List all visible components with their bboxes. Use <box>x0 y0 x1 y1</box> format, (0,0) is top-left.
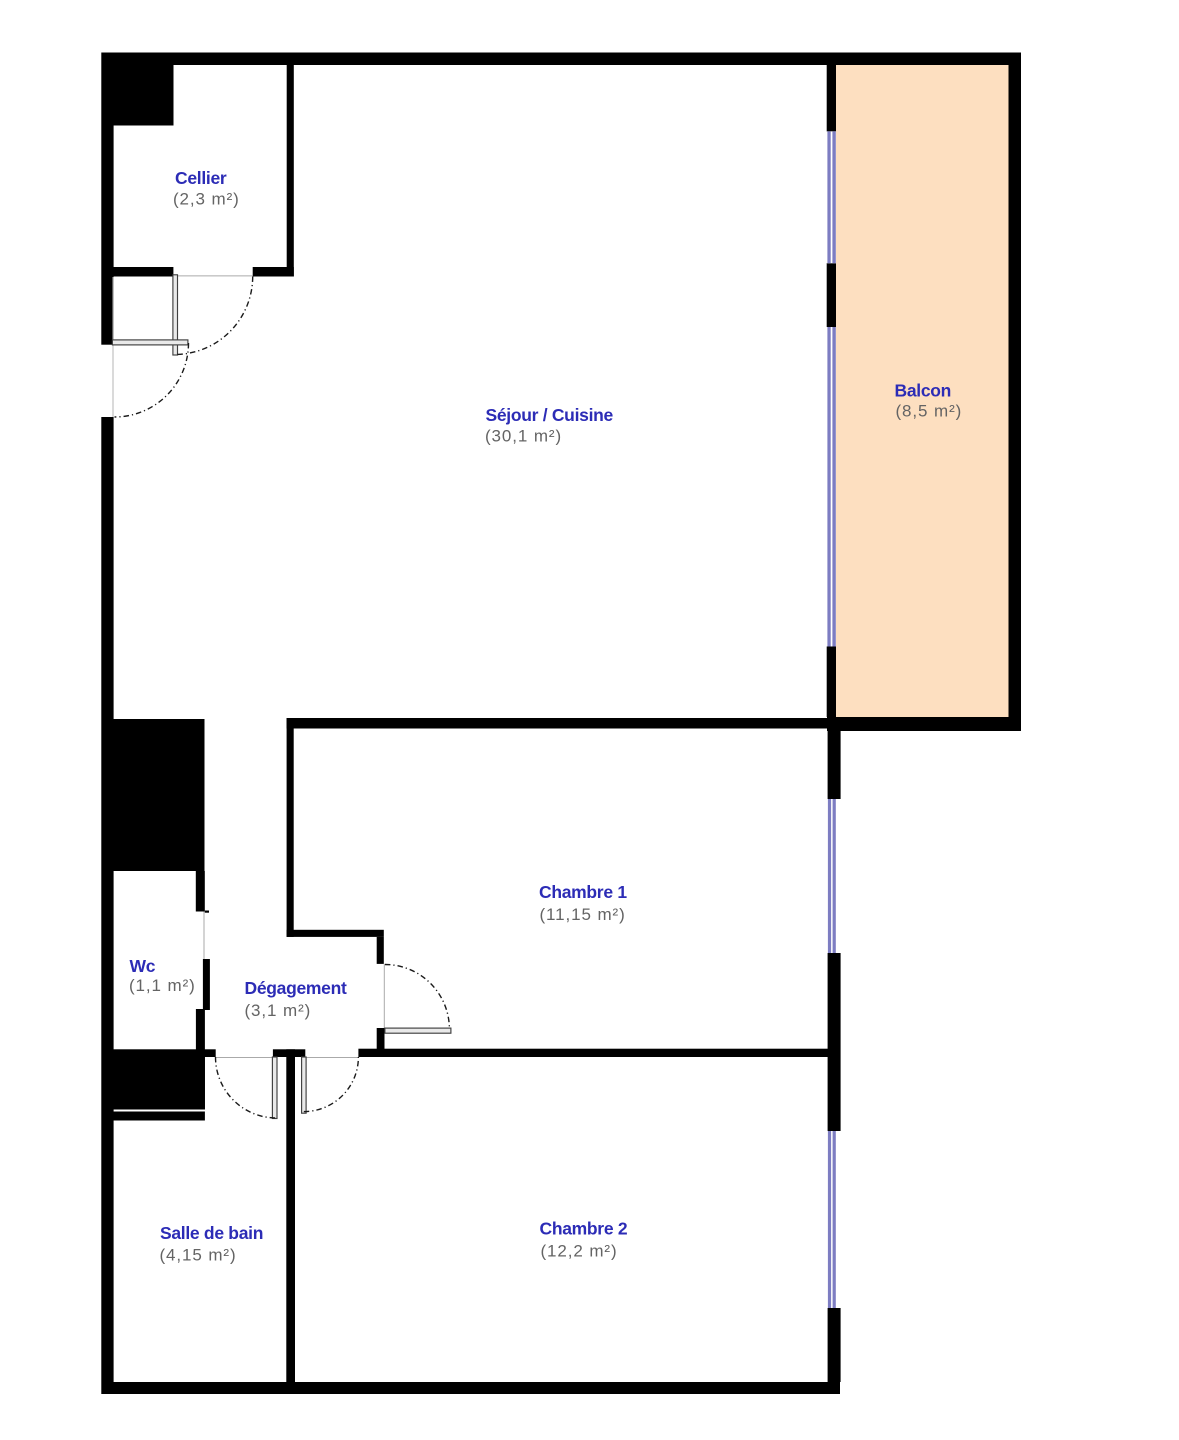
svg-text:(11,15 m²): (11,15 m²) <box>540 905 626 924</box>
svg-text:Chambre 2: Chambre 2 <box>540 1219 628 1239</box>
svg-text:(3,1 m²): (3,1 m²) <box>245 1001 312 1020</box>
svg-text:Cellier: Cellier <box>175 168 227 188</box>
svg-text:(2,3 m²): (2,3 m²) <box>173 190 240 209</box>
svg-text:Séjour / Cuisine: Séjour / Cuisine <box>486 405 614 425</box>
svg-text:(30,1 m²): (30,1 m²) <box>485 427 562 446</box>
svg-text:Wc: Wc <box>130 956 156 976</box>
svg-text:(12,2 m²): (12,2 m²) <box>541 1242 618 1261</box>
svg-text:Chambre 1: Chambre 1 <box>539 882 627 902</box>
svg-text:Salle de bain: Salle de bain <box>160 1223 263 1243</box>
svg-text:(1,1 m²): (1,1 m²) <box>129 976 196 995</box>
svg-text:Balcon: Balcon <box>895 381 952 401</box>
svg-text:(8,5 m²): (8,5 m²) <box>896 402 963 421</box>
svg-text:(4,15 m²): (4,15 m²) <box>160 1246 237 1265</box>
svg-text:Dégagement: Dégagement <box>245 978 347 998</box>
